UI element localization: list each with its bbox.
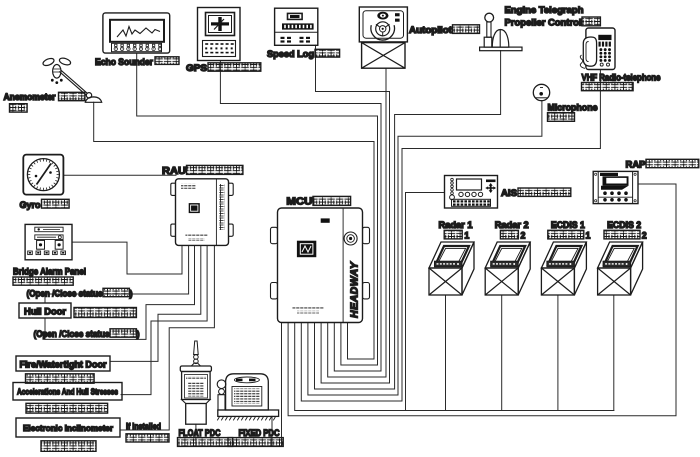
svg-text:Radar 1: Radar 1 [439, 219, 473, 230]
svg-text:Accelerations And Hull Stresse: Accelerations And Hull Stresses [17, 388, 118, 397]
svg-text:FLOAT PDC: FLOAT PDC [179, 427, 221, 438]
svg-text:ECDIS 2: ECDIS 2 [607, 219, 641, 230]
svg-text:(Open /Close status: (Open /Close status [27, 288, 103, 298]
svg-text:1: 1 [464, 230, 469, 240]
svg-text:FIXED PDC: FIXED PDC [239, 427, 280, 438]
svg-text:2: 2 [642, 230, 647, 240]
svg-text:Fire/Watertight Door: Fire/Watertight Door [20, 358, 107, 369]
svg-text:RAU: RAU [162, 166, 186, 177]
svg-text:AIS: AIS [501, 187, 517, 198]
svg-text:Hull Door: Hull Door [24, 305, 66, 316]
svg-text:Gyro: Gyro [20, 199, 41, 210]
svg-text:Radar 2: Radar 2 [495, 219, 529, 230]
svg-text:Speed Log: Speed Log [267, 48, 314, 59]
svg-text:Propeller Control: Propeller Control [505, 16, 582, 27]
svg-text:ECDIS 1: ECDIS 1 [551, 219, 585, 230]
svg-text:Anemometer: Anemometer [4, 92, 57, 102]
svg-text:1: 1 [586, 230, 591, 240]
svg-text:): ) [137, 329, 140, 339]
svg-text:Bridge Alarm Panel: Bridge Alarm Panel [13, 266, 86, 276]
svg-text:2: 2 [521, 230, 526, 240]
svg-text:Electronic Inclinometer: Electronic Inclinometer [23, 423, 114, 433]
svg-text:Engine Telegraph: Engine Telegraph [505, 4, 584, 15]
svg-text:HEADWAY: HEADWAY [349, 261, 361, 318]
svg-text:(Open /Close status: (Open /Close status [34, 329, 110, 339]
svg-text:Echo Sounder: Echo Sounder [95, 56, 153, 67]
svg-text:VHF Radio-telephone: VHF Radio-telephone [582, 72, 661, 82]
svg-text:): ) [130, 288, 133, 298]
svg-text:if installed: if installed [126, 421, 161, 431]
svg-text:RAP: RAP [626, 159, 646, 169]
svg-text:Autopilot: Autopilot [409, 24, 452, 35]
svg-text:MCU: MCU [286, 197, 312, 208]
svg-text:Microphone: Microphone [548, 101, 598, 112]
svg-text:GPS: GPS [186, 62, 207, 73]
